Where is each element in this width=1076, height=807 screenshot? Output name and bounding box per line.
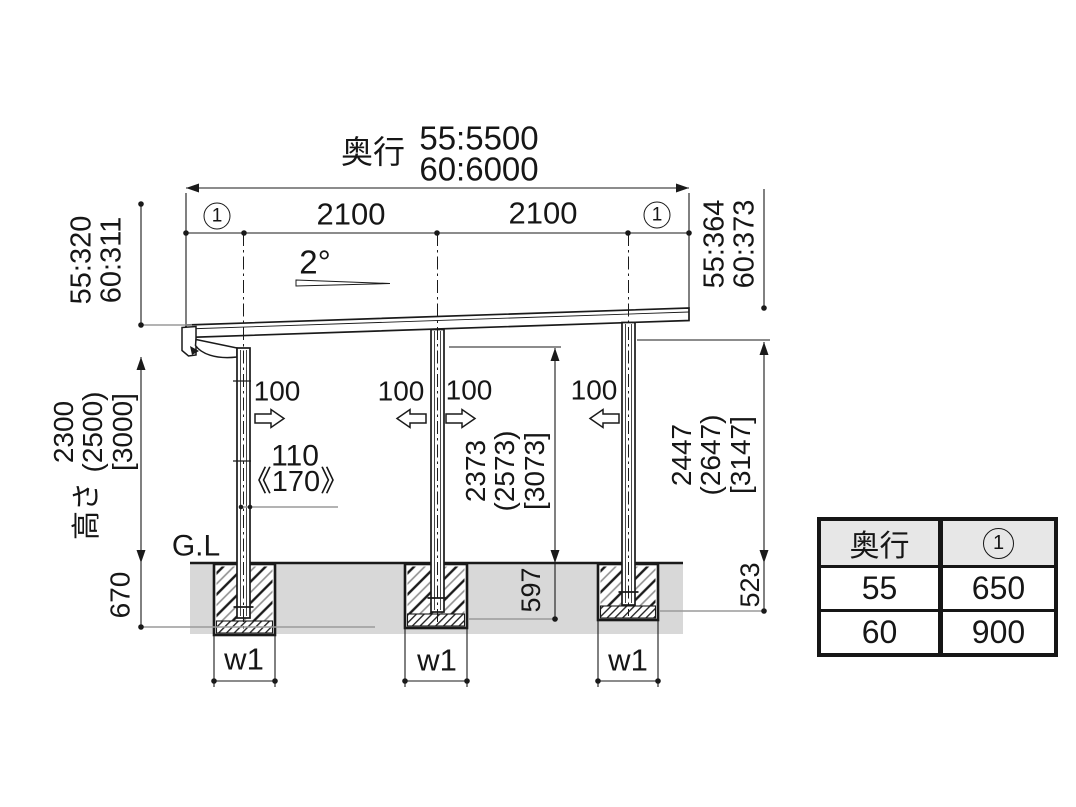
rear-edge-height: 55:364 60:373 xyxy=(700,200,761,289)
spec-table: 奥行 1 55 650 60 900 xyxy=(817,517,1058,657)
roof-slope-value: 2° xyxy=(299,246,331,281)
footing-depth-center: 597 xyxy=(517,567,545,612)
dimension-arrows xyxy=(137,184,769,564)
depth-value-60: 60:6000 xyxy=(419,153,538,188)
spec-table-row1-depth: 55 xyxy=(821,565,943,609)
span-rear-value: 2100 xyxy=(509,198,578,231)
footing-depth-right: 523 xyxy=(736,562,764,607)
spec-table-header-mark: 1 xyxy=(943,521,1054,565)
footing-width-center: w1 xyxy=(417,645,457,678)
rear-clearance-height: 2447 (2647) [3147] xyxy=(667,415,755,496)
overall-height: 2300 (2500) [3000] xyxy=(49,392,137,473)
mid-clearance-height: 2373 (2573) [3073] xyxy=(461,431,549,512)
post-inset-alt-value: 《170》 xyxy=(243,467,349,497)
offset-value-3: 100 xyxy=(446,375,493,404)
footing-width-right: w1 xyxy=(608,645,648,678)
front-edge-height: 55:320 60:311 xyxy=(67,216,128,305)
offset-value-4: 100 xyxy=(571,375,618,404)
spec-table-row1-value: 650 xyxy=(943,565,1054,609)
circle-1-icon: 1 xyxy=(983,528,1014,559)
footing-width-left: w1 xyxy=(224,644,264,677)
depth-dimension-label: 奥行 xyxy=(341,136,405,170)
offset-value-1: 100 xyxy=(254,376,301,405)
carport-elevation-drawing: 奥行 55:5500 60:6000 1 2100 2100 1 2° 55:3… xyxy=(0,0,1076,807)
overhang-mark-left: 1 xyxy=(204,203,231,230)
height-label: 高さ xyxy=(72,482,102,540)
overhang-mark-right: 1 xyxy=(644,202,671,229)
slope-wedge xyxy=(296,280,390,286)
ground-level-label: G.L xyxy=(172,530,220,562)
span-front-value: 2100 xyxy=(317,199,386,232)
spec-table-header-depth: 奥行 xyxy=(821,521,943,565)
footing-depth-left: 670 xyxy=(105,572,134,619)
spec-table-row2-value: 900 xyxy=(943,609,1054,653)
offset-value-2: 100 xyxy=(378,376,425,405)
spec-table-row2-depth: 60 xyxy=(821,609,943,653)
